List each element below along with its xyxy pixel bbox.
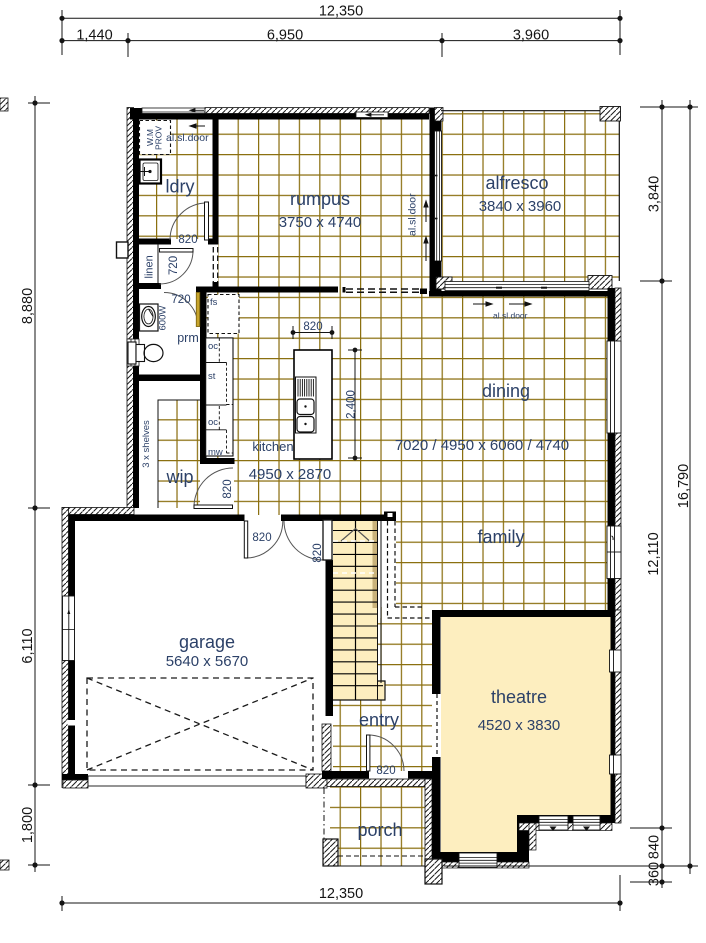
- svg-text:ldry: ldry: [165, 177, 194, 197]
- svg-text:7020 / 4950 x 6060 / 4740: 7020 / 4950 x 6060 / 4740: [395, 437, 569, 454]
- svg-text:wip: wip: [165, 467, 193, 487]
- svg-text:porch: porch: [357, 820, 402, 840]
- svg-text:820: 820: [303, 321, 322, 333]
- svg-text:820: 820: [178, 234, 197, 246]
- svg-text:theatre: theatre: [491, 687, 547, 707]
- svg-text:garage: garage: [179, 632, 235, 652]
- svg-text:16,790: 16,790: [676, 464, 692, 508]
- svg-text:3 x shelves: 3 x shelves: [141, 420, 152, 468]
- svg-text:720: 720: [168, 256, 180, 275]
- svg-text:1,800: 1,800: [20, 807, 36, 843]
- svg-text:3,960: 3,960: [513, 28, 549, 44]
- svg-text:entry: entry: [359, 710, 399, 730]
- svg-text:3750 x 4740: 3750 x 4740: [279, 214, 362, 231]
- svg-text:4520 x 3830: 4520 x 3830: [478, 717, 561, 734]
- svg-text:oc: oc: [208, 341, 218, 352]
- svg-text:al.sl.door: al.sl.door: [493, 311, 528, 321]
- svg-text:6,110: 6,110: [20, 628, 36, 663]
- svg-text:820: 820: [376, 765, 395, 777]
- svg-text:5640 x 5670: 5640 x 5670: [166, 653, 249, 670]
- svg-text:6,950: 6,950: [267, 28, 303, 44]
- svg-text:3840 x 3960: 3840 x 3960: [479, 198, 562, 215]
- svg-text:2,400: 2,400: [346, 390, 358, 419]
- svg-text:600W: 600W: [158, 306, 169, 331]
- svg-text:820: 820: [252, 532, 271, 544]
- svg-text:12,110: 12,110: [646, 532, 662, 575]
- svg-text:8,880: 8,880: [20, 288, 36, 324]
- svg-text:prm: prm: [177, 331, 199, 345]
- svg-text:PROV: PROV: [154, 126, 164, 150]
- svg-text:4950 x 2870: 4950 x 2870: [249, 466, 332, 483]
- svg-text:fs: fs: [210, 297, 218, 308]
- svg-text:820: 820: [222, 479, 234, 498]
- svg-text:1,440: 1,440: [76, 28, 112, 44]
- svg-text:family: family: [477, 527, 524, 547]
- svg-text:alfresco: alfresco: [485, 173, 548, 193]
- svg-text:360: 360: [647, 862, 663, 886]
- svg-text:al.sl.door: al.sl.door: [166, 132, 209, 144]
- svg-text:820: 820: [312, 543, 324, 562]
- svg-text:st: st: [208, 371, 216, 382]
- svg-text:dining: dining: [482, 381, 530, 401]
- svg-text:rumpus: rumpus: [290, 189, 350, 209]
- svg-text:3,840: 3,840: [647, 176, 663, 212]
- svg-text:oc: oc: [208, 417, 218, 428]
- svg-text:linen: linen: [144, 255, 156, 278]
- svg-text:12,350: 12,350: [319, 886, 363, 902]
- svg-text:kitchen: kitchen: [252, 439, 293, 454]
- svg-text:12,350: 12,350: [319, 4, 363, 20]
- svg-text:840: 840: [647, 835, 663, 859]
- svg-text:al.sl.door: al.sl.door: [407, 193, 419, 236]
- svg-text:mw: mw: [208, 447, 223, 458]
- svg-text:720: 720: [171, 294, 190, 306]
